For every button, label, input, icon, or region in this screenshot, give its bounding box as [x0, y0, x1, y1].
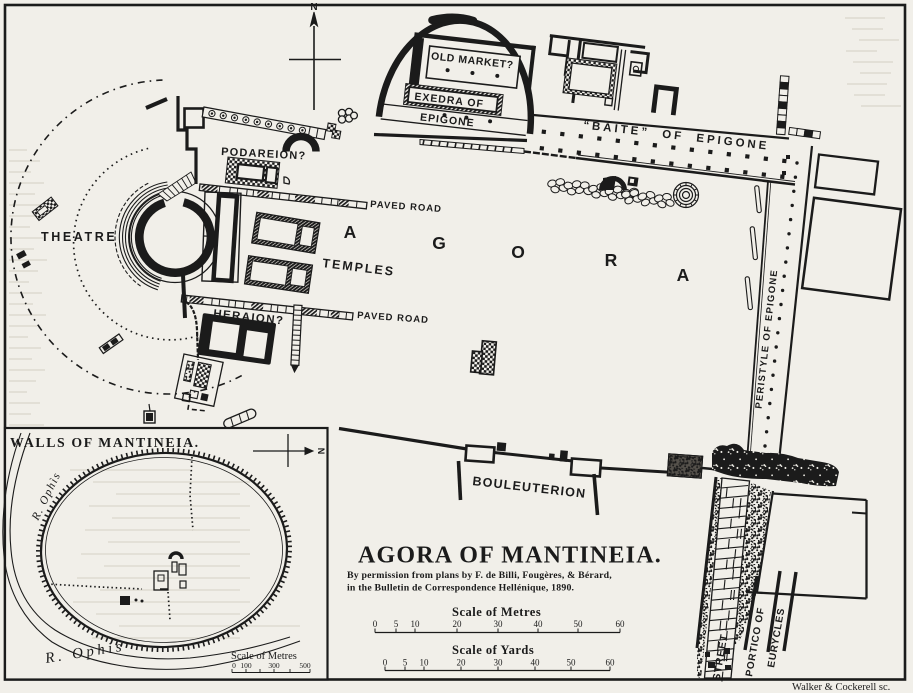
- svg-text:G: G: [432, 233, 446, 253]
- svg-text:20: 20: [453, 619, 463, 629]
- svg-text:10: 10: [411, 619, 421, 629]
- svg-text:100: 100: [240, 661, 252, 670]
- svg-text:0: 0: [373, 619, 378, 629]
- svg-text:0: 0: [232, 661, 236, 670]
- svg-text:in the Bulletin de Corresponde: in the Bulletin de Correspondence Hellén…: [347, 583, 575, 594]
- svg-text:5: 5: [394, 619, 399, 629]
- svg-text:30: 30: [494, 658, 504, 668]
- svg-text:WALLS OF MANTINEIA.: WALLS OF MANTINEIA.: [10, 435, 200, 450]
- svg-text:A: A: [677, 265, 690, 285]
- svg-text:500: 500: [299, 661, 311, 670]
- svg-text:60: 60: [616, 619, 626, 629]
- svg-text:A: A: [344, 222, 357, 242]
- svg-text:40: 40: [531, 658, 541, 668]
- svg-text:5: 5: [403, 658, 408, 668]
- svg-text:AGORA OF MANTINEIA.: AGORA OF MANTINEIA.: [358, 543, 662, 569]
- svg-text:Scale of Metres: Scale of Metres: [452, 605, 541, 619]
- svg-text:50: 50: [567, 658, 577, 668]
- svg-text:30: 30: [494, 619, 504, 629]
- svg-text:Scale of Yards: Scale of Yards: [452, 643, 534, 657]
- svg-text:50: 50: [574, 619, 584, 629]
- svg-text:Walker & Cockerell sc.: Walker & Cockerell sc.: [792, 682, 890, 693]
- svg-text:20: 20: [457, 658, 467, 668]
- svg-text:N: N: [316, 448, 326, 455]
- svg-text:O: O: [511, 242, 525, 262]
- svg-text:THEATRE: THEATRE: [41, 230, 117, 244]
- svg-text:10: 10: [420, 658, 430, 668]
- svg-text:N: N: [310, 2, 317, 13]
- svg-text:R: R: [605, 250, 618, 270]
- svg-text:300: 300: [268, 661, 280, 670]
- svg-text:By permission from plans by F.: By permission from plans by F. de Billi,…: [347, 570, 612, 581]
- svg-text:0: 0: [383, 658, 388, 668]
- svg-text:40: 40: [534, 619, 544, 629]
- svg-text:60: 60: [606, 658, 616, 668]
